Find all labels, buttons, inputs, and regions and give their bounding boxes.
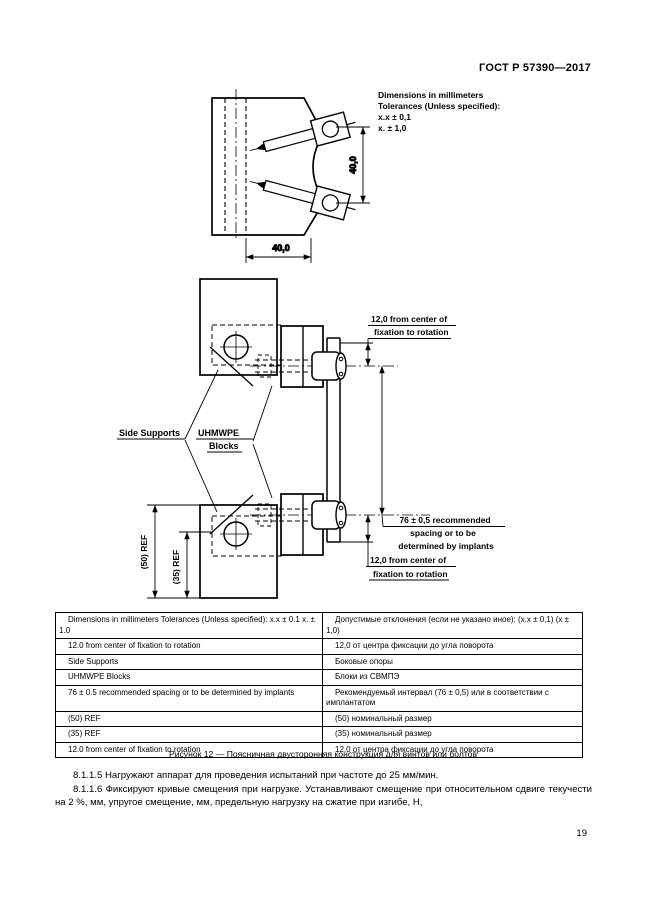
- svg-text:Blocks: Blocks: [209, 441, 239, 451]
- table-cell-en: (50) REF: [56, 711, 323, 727]
- label-uhmwpe-blocks: UHMWPE Blocks: [196, 386, 272, 498]
- svg-text:12,0 from center of: 12,0 from center of: [371, 314, 447, 324]
- svg-text:12,0 from center of: 12,0 from center of: [370, 555, 446, 565]
- svg-text:76 ± 0,5 recommended: 76 ± 0,5 recommended: [399, 515, 490, 525]
- table-cell-en: 76 ± 0.5 recommended spacing or to be de…: [56, 685, 323, 711]
- table-row: Side Supports Боковые опоры: [56, 654, 583, 670]
- top-view-dim-vertical-label: 40,0: [348, 156, 358, 174]
- front-view-drawing: Side Supports UHMWPE Blocks 12,0 from ce…: [117, 279, 505, 598]
- svg-text:determined by implants: determined by implants: [398, 541, 494, 551]
- body-text: 8.1.1.5 Нагружают аппарат для проведения…: [55, 769, 592, 810]
- table-cell-en: Side Supports: [56, 654, 323, 670]
- svg-text:(35) REF: (35) REF: [171, 550, 181, 584]
- table-row: 76 ± 0.5 recommended spacing or to be de…: [56, 685, 583, 711]
- svg-text:fixation to rotation: fixation to rotation: [374, 327, 449, 337]
- table-cell-ru: Боковые опоры: [323, 654, 583, 670]
- table-cell-en: UHMWPE Blocks: [56, 670, 323, 686]
- table-row: (35) REF (35) номинальный размер: [56, 727, 583, 743]
- svg-text:fixation to rotation: fixation to rotation: [373, 569, 448, 579]
- table-cell-en: Dimensions in millimeters Tolerances (Un…: [56, 613, 323, 639]
- top-view-dim-horizontal-label: 40,0: [272, 243, 290, 253]
- paragraph-8-1-1-6: 8.1.1.6 Фиксируют кривые смещения при на…: [55, 783, 592, 810]
- svg-text:UHMWPE: UHMWPE: [198, 428, 239, 438]
- document-page: ГОСТ Р 57390—2017 Dimensions in millimet…: [0, 0, 646, 913]
- table-cell-ru: Допустимые отклонения (если не указано и…: [323, 613, 583, 639]
- paragraph-8-1-1-5: 8.1.1.5 Нагружают аппарат для проведения…: [55, 769, 592, 783]
- table-cell-ru: (35) номинальный размер: [323, 727, 583, 743]
- page-number: 19: [55, 828, 587, 839]
- table-cell-ru: Блоки из СВМПЭ: [323, 670, 583, 686]
- table-cell-ru: Рекомендуемый интервал (76 ± 0,5) или в …: [323, 685, 583, 711]
- top-view-block-outline: [212, 98, 319, 235]
- front-view-upper-support-block: [200, 279, 283, 386]
- top-view-drawing: 40,0 40,0: [212, 89, 370, 263]
- table-row: Dimensions in millimeters Tolerances (Un…: [56, 613, 583, 639]
- svg-text:Side Supports: Side Supports: [119, 428, 180, 438]
- table-cell-en: (35) REF: [56, 727, 323, 743]
- table-row: (50) REF (50) номинальный размер: [56, 711, 583, 727]
- table-cell-en: 12.0 from center of fixation to rotation: [56, 639, 323, 655]
- figure-caption: Рисунок 12 — Поясничная двусторонняя кон…: [28, 749, 618, 759]
- legend-table: Dimensions in millimeters Tolerances (Un…: [55, 612, 583, 758]
- table-cell-ru: 12,0 от центра фиксации до угла поворота: [323, 639, 583, 655]
- dim-top-offset: 12,0 from center of fixation to rotation: [340, 314, 456, 366]
- svg-text:(50) REF: (50) REF: [139, 535, 149, 569]
- label-side-supports: Side Supports: [117, 370, 218, 512]
- table-row: 12.0 from center of fixation to rotation…: [56, 639, 583, 655]
- dim-spacing: 76 ± 0,5 recommended spacing or to be de…: [382, 366, 505, 551]
- front-view-lower-support-block: [200, 495, 283, 598]
- svg-text:spacing or to be: spacing or to be: [410, 528, 476, 538]
- table-cell-ru: (50) номинальный размер: [323, 711, 583, 727]
- table-row: UHMWPE Blocks Блоки из СВМПЭ: [56, 670, 583, 686]
